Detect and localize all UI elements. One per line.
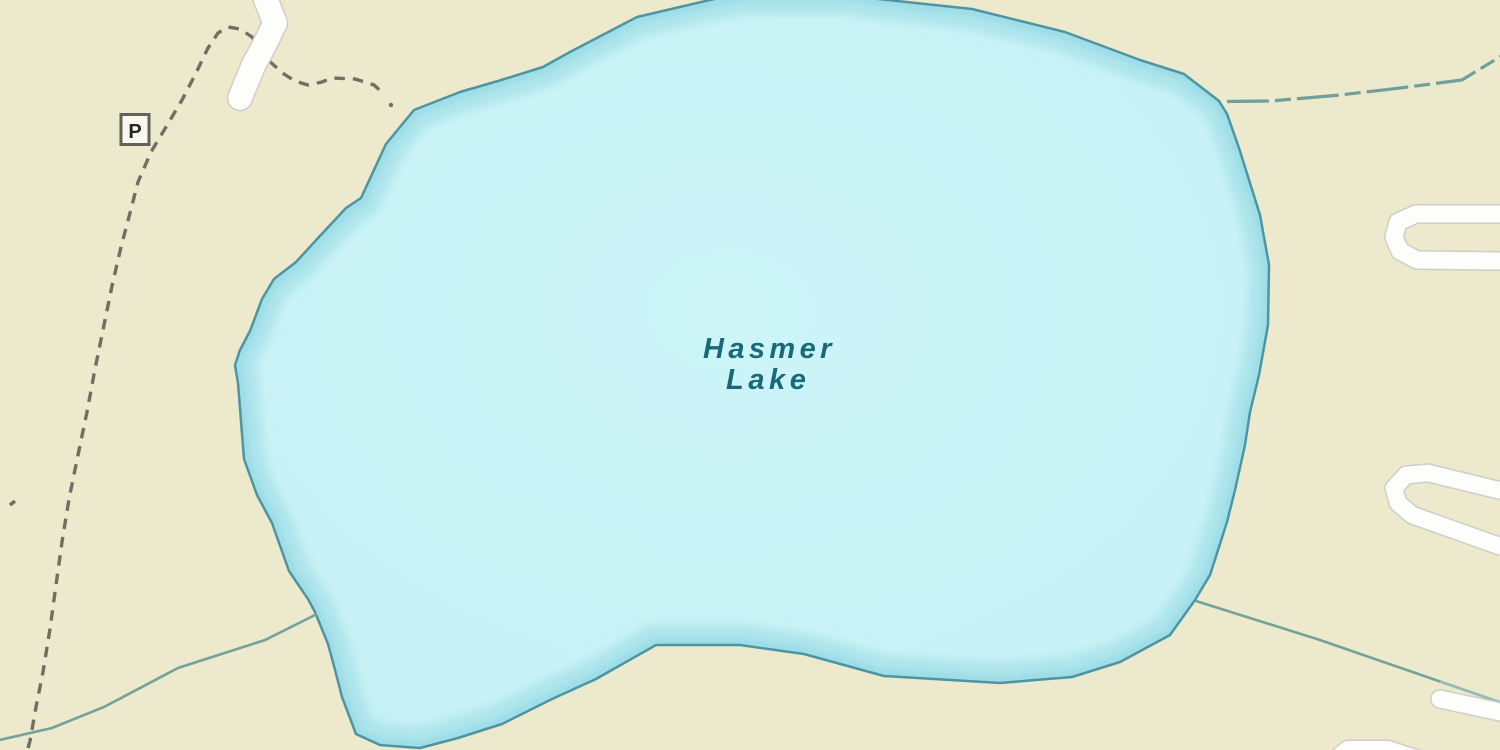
svg-text:Hasmer: Hasmer bbox=[703, 333, 836, 365]
svg-text:P: P bbox=[128, 121, 141, 143]
svg-text:Lake: Lake bbox=[726, 364, 811, 396]
